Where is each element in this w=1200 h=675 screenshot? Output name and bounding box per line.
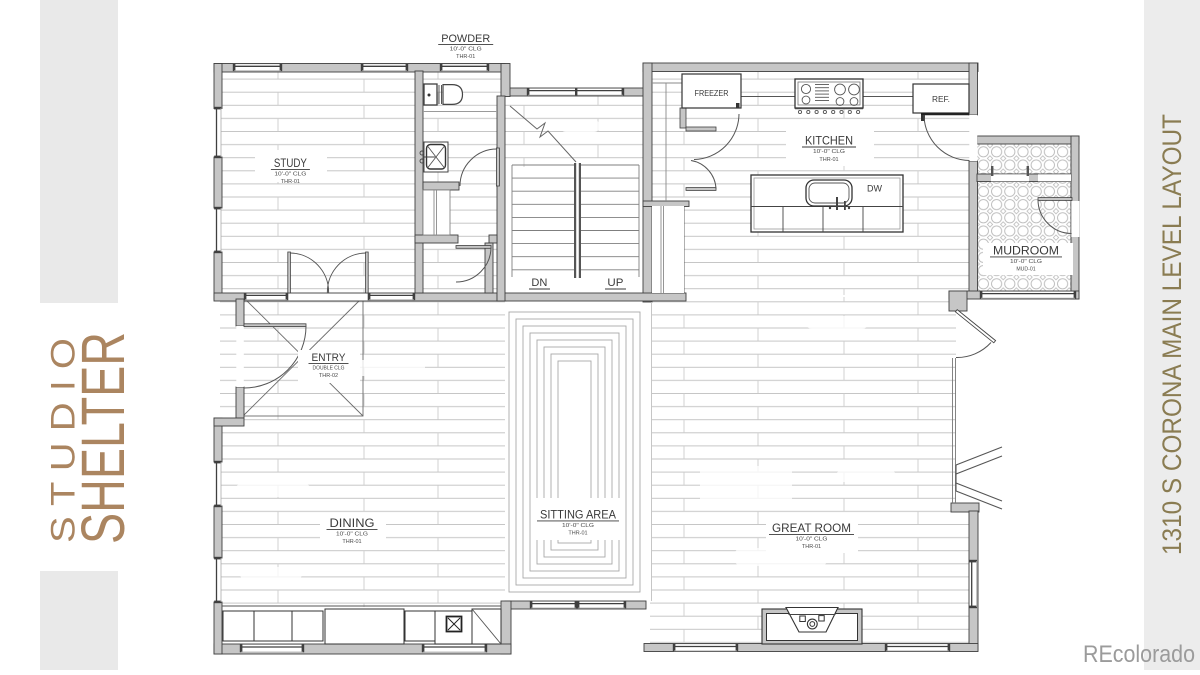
svg-text:UP: UP (607, 277, 623, 289)
svg-text:10'-0" CLG: 10'-0" CLG (336, 532, 368, 538)
svg-text:THR-01: THR-01 (568, 531, 587, 537)
svg-text:DW: DW (867, 184, 882, 195)
svg-text:10'-0" CLG: 10'-0" CLG (274, 172, 306, 178)
svg-text:POWDER: POWDER (441, 33, 490, 45)
svg-text:STUDY: STUDY (274, 156, 307, 170)
svg-text:1310 S CORONA MAIN LEVEL LAYOU: 1310 S CORONA MAIN LEVEL LAYOUT (1157, 114, 1187, 555)
svg-text:10'-0" CLG: 10'-0" CLG (813, 149, 845, 155)
svg-text:THR-02: THR-02 (319, 373, 338, 379)
svg-text:10'-0" CLG: 10'-0" CLG (562, 523, 594, 529)
svg-text:MUD-01: MUD-01 (1016, 267, 1035, 273)
svg-text:FREEZER: FREEZER (695, 89, 729, 98)
svg-text:THR-01: THR-01 (819, 157, 838, 163)
svg-text:ENTRY: ENTRY (312, 352, 347, 364)
svg-text:THR-01: THR-01 (342, 539, 361, 545)
svg-text:THR-01: THR-01 (802, 544, 821, 550)
svg-text:REF.: REF. (932, 95, 950, 104)
svg-text:SHELTER: SHELTER (69, 332, 137, 544)
svg-text:KITCHEN: KITCHEN (805, 134, 853, 148)
svg-text:THR-01: THR-01 (281, 179, 300, 185)
svg-text:REcolorado: REcolorado (1083, 641, 1195, 668)
svg-text:SITTING AREA: SITTING AREA (540, 510, 616, 522)
svg-text:10'-0" CLG: 10'-0" CLG (1010, 259, 1042, 265)
svg-text:THR-01: THR-01 (456, 54, 475, 60)
svg-text:DN: DN (531, 277, 547, 289)
svg-text:10'-0" CLG: 10'-0" CLG (450, 47, 482, 53)
svg-text:DOUBLE CLG: DOUBLE CLG (313, 366, 345, 372)
svg-text:MUDROOM: MUDROOM (993, 244, 1059, 258)
svg-text:10'-0" CLG: 10'-0" CLG (796, 537, 828, 543)
svg-text:GREAT ROOM: GREAT ROOM (772, 521, 851, 535)
svg-text:DINING: DINING (330, 516, 375, 530)
